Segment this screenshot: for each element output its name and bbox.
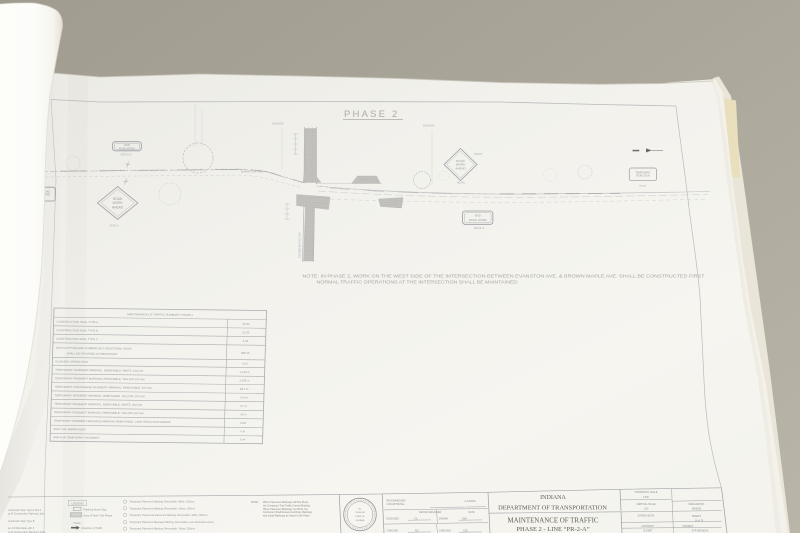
svg-text:pe 3-D Barricade with 3: pe 3-D Barricade with 3 <box>8 527 35 530</box>
svg-text:AHEAD: AHEAD <box>455 166 466 170</box>
svg-text:1,035 m: 1,035 m <box>239 378 250 382</box>
svg-text:BROWN MAPLE AVE: BROWN MAPLE AVE <box>298 232 302 258</box>
svg-text:MAINTENANCE OF TRAFFIC: MAINTENANCE OF TRAFFIC <box>508 518 599 525</box>
svg-text:No.: No. <box>358 509 362 511</box>
svg-text:4 EA: 4 EA <box>240 421 246 425</box>
svg-text:Temporary Pavement Message Mar: Temporary Pavement Message Marking, Remo… <box>130 521 214 524</box>
svg-text:DRAWN: DRAWN <box>439 517 448 520</box>
svg-text:ROAD WORK: ROAD WORK <box>469 218 487 222</box>
svg-text:FOR APPROVAL: FOR APPROVAL <box>387 503 406 506</box>
svg-text:DETAIL: DETAIL <box>457 181 466 184</box>
svg-text:EVANSTON AVE.: EVANSTON AVE. <box>241 170 263 174</box>
svg-text:MAINTENANCE OF TRAFFIC SUMMARY: MAINTENANCE OF TRAFFIC SUMMARY, PHASE 2 <box>127 312 193 317</box>
svg-text:NORMAL TRAFFIC OPERATIONS AT T: NORMAL TRAFFIC OPERATIONS AT THE INTERSE… <box>317 280 519 285</box>
svg-text:Flashing Arrow Sign: Flashing Arrow Sign <box>84 507 108 511</box>
svg-text:HORIZONTAL SCALE: HORIZONTAL SCALE <box>635 491 658 494</box>
svg-text:57 m: 57 m <box>240 404 247 408</box>
svg-text:DETAIL A: DETAIL A <box>120 153 131 157</box>
svg-text:PHASE 2: PHASE 2 <box>344 109 400 120</box>
svg-text:DESIGNED: DESIGNED <box>387 517 400 520</box>
svg-text:onstruction Sign Type B: onstruction Sign Type B <box>8 520 35 523</box>
svg-text:AHEAD: AHEAD <box>112 205 124 209</box>
svg-text:14 of 76: 14 of 76 <box>695 521 704 523</box>
svg-text:164+000: 164+000 <box>423 123 435 127</box>
svg-text:39.84: 39.84 <box>242 322 250 326</box>
svg-text:CHECKED: CHECKED <box>439 529 451 532</box>
svg-text:PROJECT: PROJECT <box>683 526 694 528</box>
svg-text:1:500: 1:500 <box>643 497 649 499</box>
svg-text:CONTRACT: CONTRACT <box>642 525 655 528</box>
svg-text:ROAD SIGN: ROAD SIGN <box>636 175 650 178</box>
svg-text:INDIANA: INDIANA <box>540 495 566 501</box>
svg-text:23.53: 23.53 <box>242 330 250 334</box>
svg-text:Temporary Pavement Marking, Re: Temporary Pavement Marking, Removable, W… <box>130 501 195 504</box>
svg-text:PHASE 2 - LINE “PR-2-A”: PHASE 2 - LINE “PR-2-A” <box>516 526 589 533</box>
svg-text:DEPARTMENT OF TRANSPORTATION: DEPARTMENT OF TRANSPORTATION <box>498 505 607 512</box>
svg-text:SHEETS: SHEETS <box>692 516 702 518</box>
svg-text:INDIANA: INDIANA <box>356 519 365 522</box>
svg-text:STATE OF: STATE OF <box>355 515 366 518</box>
svg-text:DESIGNATION: DESIGNATION <box>689 503 705 506</box>
svg-text:Direction of Traffic: Direction of Traffic <box>82 526 104 530</box>
svg-text:6 m²: 6 m² <box>240 437 246 441</box>
svg-text:VERTICAL SCALE: VERTICAL SCALE <box>636 503 656 506</box>
svg-text:NOTE: IN PHASE 2, WORK ON THE: NOTE: IN PHASE 2, WORK ON THE WEST SIDE … <box>303 274 705 279</box>
svg-text:Area of Work This Phase: Area of Work This Phase <box>84 514 113 518</box>
svg-text:38.1 m: 38.1 m <box>240 387 249 391</box>
svg-text:SIGN A: SIGN A <box>110 223 119 227</box>
svg-text:35 m: 35 m <box>240 412 247 416</box>
svg-text:A.10/2008: A.10/2008 <box>465 500 477 503</box>
svg-text:SURVEY BOOK: SURVEY BOOK <box>638 516 655 518</box>
svg-text:274 m: 274 m <box>240 395 249 399</box>
svg-text:DETAIL: DETAIL <box>639 184 647 187</box>
svg-text:DESIGN ENGINEER: DESIGN ENGINEER <box>419 511 442 514</box>
svg-text:6 m: 6 m <box>240 429 245 433</box>
svg-text:288.15: 288.15 <box>241 351 250 355</box>
svg-text:and install Markings as Noted: and install Markings as Noted in the Pla… <box>263 515 310 518</box>
svg-text:1:50: 1:50 <box>644 508 649 510</box>
svg-text:Temporary Transverse Pavement: Temporary Transverse Pavement Marking, R… <box>130 514 208 517</box>
svg-text:onstruction Sign Type A with 1: onstruction Sign Type A with 1 <box>8 509 42 512</box>
svg-text:0.33: 0.33 <box>242 362 248 366</box>
svg-text:Temporary Pavement Marking, Re: Temporary Pavement Marking, Removable, Y… <box>130 528 195 531</box>
svg-text:B-24687: B-24687 <box>644 531 653 533</box>
svg-text:STP-098-9(014): STP-098-9(014) <box>692 531 709 533</box>
svg-text:9802935: 9802935 <box>692 509 702 511</box>
svg-text:DATE: DATE <box>469 511 476 514</box>
svg-text:DETAIL B: DETAIL B <box>474 227 485 230</box>
svg-text:pe B Construction Warning Ligh: pe B Construction Warning Light <box>8 512 44 515</box>
svg-text:NOTE:: NOTE: <box>251 501 259 504</box>
svg-text:CHECKED: CHECKED <box>387 529 399 532</box>
svg-text:SIGN B: SIGN B <box>474 153 483 156</box>
svg-text:ROAD WORK: ROAD WORK <box>119 146 136 150</box>
svg-text:4.09: 4.09 <box>243 339 249 343</box>
svg-text:154+000: 154+000 <box>272 122 284 126</box>
svg-text:1,149 m: 1,149 m <box>239 370 250 374</box>
svg-text:19800188: 19800188 <box>355 512 365 514</box>
svg-text:Temporary Pavement Marking, Re: Temporary Pavement Marking, Removable, Y… <box>130 507 195 510</box>
